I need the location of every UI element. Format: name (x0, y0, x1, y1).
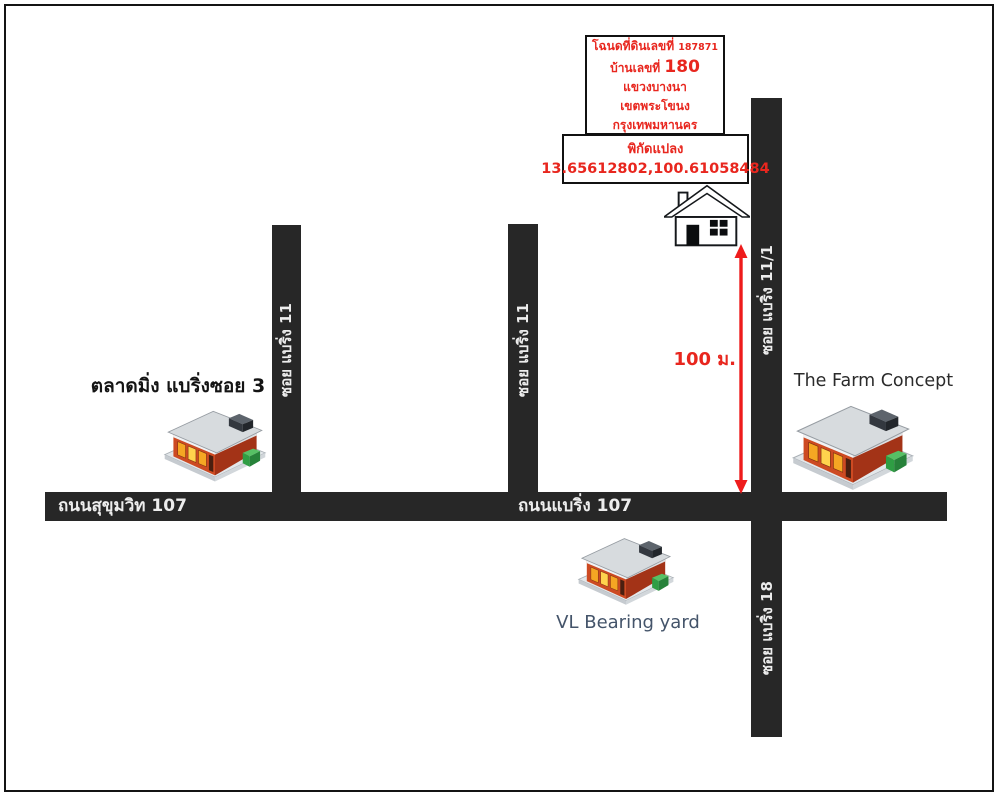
distance-label: 100 ม. (660, 344, 736, 373)
house-door (686, 225, 699, 246)
map-canvas: ซอย แบริ่ง 11 ซอย แบริ่ง 11 ซอย แบริ่ง 1… (0, 0, 1002, 800)
deed-number-line: โฉนดที่ดินเลขที่ 187871 (592, 37, 718, 57)
coordinates-value: 13.65612802,100.61058484 (541, 159, 769, 179)
house-number-line: บ้านเลขที่ 180 (610, 58, 700, 77)
market-label: ตลาดมิ่ง แบริ่งซอย 3 (58, 371, 298, 401)
farm-concept-building-icon (791, 392, 915, 495)
road-label-soi-bearing-11-left: ซอย แบริ่ง 11 (277, 275, 295, 425)
road-label-soi-bearing-11-1: ซอย แบริ่ง 11/1 (758, 225, 776, 375)
market-building-icon (163, 399, 267, 486)
road-label-bearing-107: ถนนแบริ่ง 107 (518, 492, 632, 521)
province-line: กรุงเทพมหานคร (613, 116, 698, 134)
coordinates-title: พิกัดแปลง (628, 140, 684, 159)
district-line: เขตพระโขนง (620, 97, 690, 115)
farm-concept-label: The Farm Concept (781, 371, 966, 391)
road-label-soi-bearing-11-mid: ซอย แบริ่ง 11 (514, 275, 532, 425)
bearing-yard-building-icon (577, 527, 675, 609)
road-label-sukhumvit-107: ถนนสุขุมวิท 107 (58, 492, 187, 521)
deed-info-box: โฉนดที่ดินเลขที่ 187871 บ้านเลขที่ 180 แ… (585, 35, 725, 135)
coordinates-box: พิกัดแปลง 13.65612802,100.61058484 (562, 134, 749, 184)
road-label-soi-bearing-18: ซอย แบริ่ง 18 (758, 553, 776, 703)
house-icon (664, 184, 750, 248)
subdistrict-line: แขวงบางนา (623, 78, 687, 96)
bearing-yard-label: VL Bearing yard (548, 612, 708, 633)
